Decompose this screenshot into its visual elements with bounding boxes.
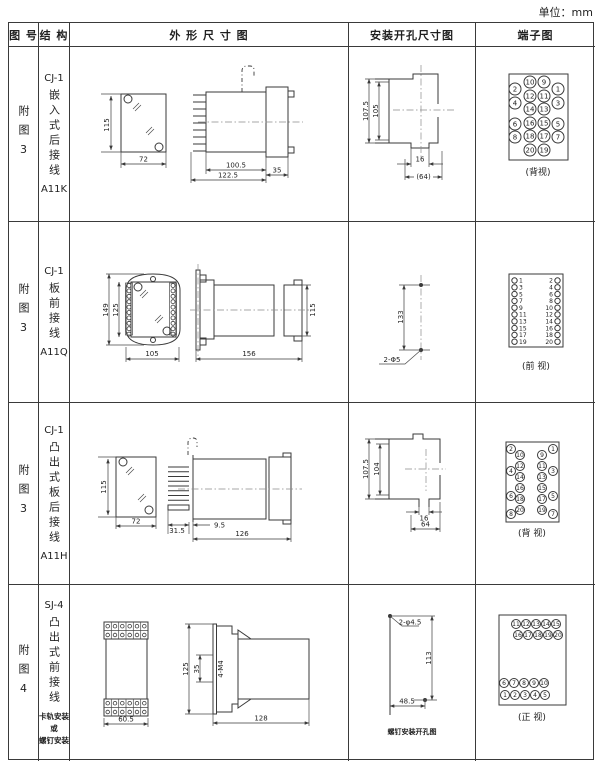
header-structure: 结 构 [39,23,70,47]
terminal-number: 17 [538,496,546,503]
terminal-number: 13 [538,474,546,481]
dim-label: 107.5 [362,101,370,121]
terminal-number: 20 [526,147,535,155]
model-label: CJ-1 [44,73,64,84]
install-drawing-cell: 107.5 104 16 64 [349,403,476,585]
terminal-dot [128,701,132,705]
terminal-circle [555,285,560,290]
terminal-number: 2 [513,692,517,699]
terminal-dot [127,284,131,288]
terminal-number: 10 [526,79,535,87]
terminal-number: 18 [526,133,535,141]
dim-label: 115 [100,480,108,493]
terminal-dot [127,300,131,304]
terminal-dot [106,624,110,628]
terminal-number: 4 [513,100,518,108]
outline-drawing-r3: 115 72 31.5 9.5 126 [70,403,348,584]
install-drawing-cell: 107.5 105 16 (64) [349,47,476,222]
install-drawing-cell: 2-φ4.5 113 48.5 螺钉安装开孔图 [349,585,476,761]
terminal-dot [135,701,139,705]
terminal-circle [555,291,560,296]
terminal-dot [171,284,175,288]
terminal-circle [512,305,517,310]
terminal-dot [127,311,131,315]
terminal-dot [171,332,175,336]
terminal-number: 6 [509,493,513,500]
dim-label: 9.5 [214,522,225,530]
terminal-number: 11 [538,463,546,470]
dim-label: 48.5 [399,698,415,706]
terminal-dot [171,289,175,293]
terminal-number: 10 [516,452,524,459]
terminal-number: 12 [516,463,524,470]
terminal-dot [135,710,139,714]
terminal-diagram-cell: 1357911131517192468101214161820 (前 视) [476,222,595,403]
code-label: A11Q [40,347,67,358]
terminal-dot [121,624,125,628]
dim-label: 113 [425,651,433,664]
terminal-number: 9 [540,452,544,459]
terminal-circle [555,305,560,310]
install-caption: 螺钉安装开孔图 [388,727,437,736]
view-caption: (背视) [525,166,550,178]
terminal-dot [128,624,132,628]
terminal-dot [121,710,125,714]
terminal-circle [555,278,560,283]
terminal-number: 15 [552,621,560,628]
install-drawing-cell: 133 2-Φ5 [349,222,476,403]
dim-label: 35 [273,167,282,175]
terminal-number: 20 [545,339,553,346]
header-fig-no: 图 号 [9,23,39,47]
terminal-number: 18 [516,496,524,503]
terminal-number: 7 [512,680,516,687]
terminal-dot [171,327,175,331]
view-caption: (前 视) [522,360,550,372]
install-drawing-r1: 107.5 105 16 (64) [349,47,475,221]
terminal-number: 3 [551,468,555,475]
terminal-number: 19 [538,507,546,514]
terminal-circle [512,325,517,330]
outline-drawing-r1: 115 72 100.5 35 122.5 [70,47,348,221]
terminal-dot [128,633,132,637]
terminal-number: 20 [554,632,562,639]
terminal-dot [135,624,139,628]
terminal-diagram-cell: 1112131415161718192067891012345 (正 视) [476,585,595,761]
dim-label: 115 [103,118,111,131]
terminal-number: 9 [542,79,546,87]
outline-drawing-cell: 115 72 31.5 9.5 126 [70,403,349,585]
terminal-diagram-r4: 1112131415161718192067891012345 (正 视) [476,585,594,760]
terminal-diagram-r3: 1012141618209111315171924681357 (背 视) [476,403,594,584]
terminal-dot [171,311,175,315]
terminal-number: 13 [532,621,540,628]
terminal-dot [127,289,131,293]
dim-label: 60.5 [118,716,134,724]
terminal-dot [143,710,147,714]
fig-no-label: 附图4 [18,644,29,703]
terminal-number: 17 [524,632,532,639]
terminal-dot [121,701,125,705]
terminal-number: 7 [551,511,555,518]
dim-label: 149 [102,303,110,316]
dim-label: 126 [235,530,249,538]
terminal-circle [555,298,560,303]
dim-label: 115 [309,303,317,316]
mount-note-line: 卡轨安装 [39,711,69,723]
terminal-dot [171,321,175,325]
terminal-number: 1 [503,692,507,699]
terminal-dot [106,710,110,714]
terminal-number: 10 [540,680,548,687]
terminal-dot [135,633,139,637]
dim-label: 64 [421,521,430,529]
fig-no-label: 附图3 [18,105,29,164]
terminal-number: 12 [526,93,535,101]
terminal-number: 15 [538,485,546,492]
terminal-number: 12 [522,621,530,628]
structure-cell: CJ-1 嵌入式后接线 A11K [39,47,70,222]
fig-no-label: 附图3 [18,283,29,342]
terminal-circle [512,339,517,344]
install-drawing-r3: 107.5 104 16 64 [349,403,475,584]
dimension-table: 图 号 结 构 外 形 尺 寸 图 安装开孔尺寸图 端子图 附图3 CJ-1 嵌… [8,22,594,760]
terminal-number: 5 [543,692,547,699]
terminal-number: 8 [509,511,513,518]
terminal-number: 3 [556,100,560,108]
terminal-circle [512,291,517,296]
terminal-dot [127,305,131,309]
mount-note-line: 螺钉安装 [39,735,69,747]
structure-cell: CJ-1 板前接线 A11Q [39,222,70,403]
fig-no-cell: 附图3 [9,222,39,403]
structure-cell: SJ-4 凸出式前接线 卡轨安装 或 螺钉安装 [39,585,70,761]
terminal-dot [171,305,175,309]
terminal-dot [171,294,175,298]
structure-cell: CJ-1 凸出式板后接线 A11H [39,403,70,585]
mount-note: 卡轨安装 或 螺钉安装 [39,711,69,747]
dim-label: 156 [242,350,256,358]
terminal-number: 1 [551,446,555,453]
terminal-number: 8 [513,134,517,142]
terminal-number: 14 [542,621,550,628]
dim-label: 104 [373,462,381,476]
terminal-circle [512,332,517,337]
terminal-number: 5 [556,121,560,129]
terminal-circle [512,278,517,283]
mount-note-line: 或 [39,723,69,735]
terminal-number: 6 [513,121,518,129]
install-drawing-r4: 2-φ4.5 113 48.5 螺钉安装开孔图 [349,585,475,760]
terminal-dot [127,327,131,331]
terminal-circle [555,339,560,344]
terminal-dot [106,701,110,705]
terminal-number: 15 [540,120,549,128]
terminal-dot [106,633,110,637]
structure-type-label: 嵌入式后接线 [49,89,60,179]
terminal-number: 4 [509,468,513,475]
terminal-number: 14 [526,106,535,114]
terminal-number: 19 [540,147,549,155]
dim-label: 105 [372,104,380,117]
terminal-dot [127,332,131,336]
terminal-number: 9 [532,680,536,687]
terminal-dot [113,701,117,705]
dim-label: 100.5 [226,162,246,170]
dim-label: (64) [416,173,431,181]
terminal-dot [143,701,147,705]
terminal-circle [512,285,517,290]
terminal-dot [171,316,175,320]
outline-drawing-r4: 60.5 125 35 4-M4 128 [70,585,348,760]
terminal-number: 16 [516,485,524,492]
outline-drawing-cell: 115 72 100.5 35 122.5 [70,47,349,222]
header-outline: 外 形 尺 寸 图 [70,23,349,47]
outline-drawing-r2: 149 125 105 115 156 [70,222,348,402]
structure-type-label: 板前接线 [49,282,60,342]
hole-label: 2-Φ5 [384,356,401,364]
terminal-diagram-cell: 1012141618209111315171924681357 (背视) [476,47,595,222]
terminal-number: 11 [512,621,520,628]
dim-label: 31.5 [169,527,185,535]
terminal-dot [113,633,117,637]
code-label: A11K [41,184,67,195]
terminal-number: 17 [540,133,549,141]
structure-type-label: 凸出式板后接线 [49,441,60,546]
terminal-circle [555,319,560,324]
terminal-dot [143,624,147,628]
terminal-dot [113,624,117,628]
terminal-number: 20 [516,507,524,514]
header-terminal: 端子图 [476,23,595,47]
dim-label: 105 [145,350,158,358]
unit-label: 单位：mm [539,4,593,20]
terminal-number: 11 [540,93,549,101]
hole-label: 2-φ4.5 [399,619,422,627]
terminal-number: 8 [522,680,526,687]
terminal-number: 2 [513,86,517,94]
terminal-number: 18 [534,632,542,639]
terminal-number: 16 [526,120,535,128]
terminal-dot [113,710,117,714]
terminal-diagram-cell: 1012141618209111315171924681357 (背 视) [476,403,595,585]
fig-no-cell: 附图3 [9,403,39,585]
fig-no-cell: 附图4 [9,585,39,761]
dim-label: 122.5 [218,172,238,180]
terminal-number: 14 [516,474,524,481]
dim-label: 107.5 [362,459,370,479]
fig-no-cell: 附图3 [9,47,39,222]
terminal-dot [143,633,147,637]
terminal-number: 19 [519,339,527,346]
terminal-number: 13 [540,106,549,114]
dim-label: 128 [254,715,267,723]
page: 单位：mm 图 号 结 构 外 形 尺 寸 图 安装开孔尺寸图 端子图 附图3 … [0,0,601,776]
terminal-dot [121,633,125,637]
terminal-number: 2 [509,446,513,453]
fig-no-label: 附图3 [18,464,29,523]
model-label: SJ-4 [45,600,64,611]
terminal-diagram-r2: 1357911131517192468101214161820 (前 视) [476,222,594,402]
terminal-number: 19 [544,632,552,639]
terminal-circle [555,332,560,337]
dim-label: 125 [182,662,190,675]
dim-label: 4-M4 [217,660,225,678]
header-install: 安装开孔尺寸图 [349,23,476,47]
terminal-number: 5 [551,493,555,500]
dim-label: 72 [139,156,148,164]
install-drawing-r2: 133 2-Φ5 [349,222,475,402]
terminal-diagram-r1: 1012141618209111315171924681357 (背视) [476,47,594,221]
dim-label: 125 [112,303,120,316]
terminal-dot [127,316,131,320]
terminal-circle [555,312,560,317]
outline-drawing-cell: 60.5 125 35 4-M4 128 [70,585,349,761]
structure-type-label: 凸出式前接线 [49,616,60,706]
terminal-circle [512,298,517,303]
terminal-number: 1 [556,86,560,94]
outline-drawing-cell: 149 125 105 115 156 [70,222,349,403]
view-caption: (背 视) [518,527,546,539]
terminal-number: 7 [556,134,560,142]
terminal-circle [512,312,517,317]
dim-label: 72 [132,518,141,526]
model-label: CJ-1 [44,425,64,436]
terminal-number: 4 [533,692,537,699]
dim-label: 16 [416,156,425,164]
view-caption: (正 视) [518,711,546,723]
terminal-dot [127,294,131,298]
terminal-dot [128,710,132,714]
terminal-circle [555,325,560,330]
dim-label: 133 [397,310,405,323]
terminal-circle [512,319,517,324]
code-label: A11H [40,551,67,562]
model-label: CJ-1 [44,266,64,277]
terminal-dot [171,300,175,304]
terminal-number: 3 [523,692,527,699]
dim-label: 35 [193,665,201,674]
terminal-dot [127,321,131,325]
terminal-number: 6 [502,680,506,687]
terminal-number: 16 [514,632,522,639]
